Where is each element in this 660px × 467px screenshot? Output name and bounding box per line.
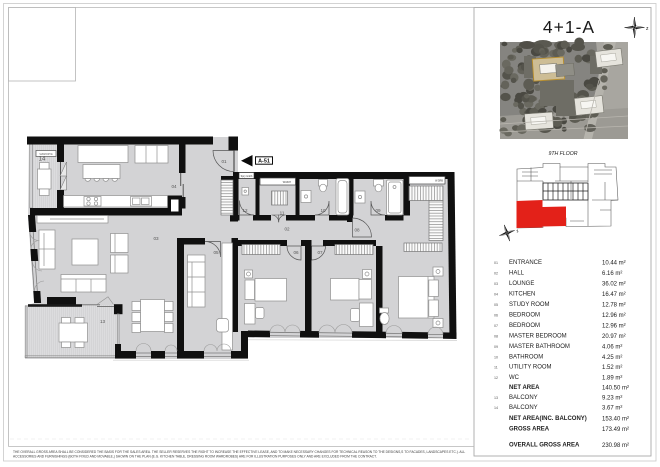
svg-text:20.97 m²: 20.97 m² <box>602 334 626 340</box>
svg-text:1.52 m²: 1.52 m² <box>602 365 622 371</box>
svg-text:10.44 m²: 10.44 m² <box>602 261 626 267</box>
svg-text:11: 11 <box>494 366 498 370</box>
svg-text:BEDROOM: BEDROOM <box>509 323 540 329</box>
svg-text:12.96 m²: 12.96 m² <box>602 313 626 319</box>
svg-text:LOUNGE: LOUNGE <box>509 281 534 287</box>
svg-text:07: 07 <box>494 324 498 328</box>
svg-text:NET AREA: NET AREA <box>509 385 540 391</box>
svg-text:BALCONY: BALCONY <box>509 395 538 401</box>
svg-text:08: 08 <box>354 228 360 233</box>
svg-text:03: 03 <box>153 236 159 241</box>
svg-text:UTILITY ROOM: UTILITY ROOM <box>509 365 552 371</box>
svg-text:STUDY ROOM: STUDY ROOM <box>509 302 550 308</box>
svg-text:140.50 m²: 140.50 m² <box>602 386 629 392</box>
svg-text:BATHROOM: BATHROOM <box>509 355 543 361</box>
svg-text:12.96 m²: 12.96 m² <box>602 324 626 330</box>
svg-text:09: 09 <box>494 345 498 349</box>
svg-text:ACCESSORIES AND FURNISHINGS (B: ACCESSORIES AND FURNISHINGS (BOTH FIXED … <box>13 455 377 459</box>
svg-text:01: 01 <box>221 159 227 164</box>
svg-text:GROSS AREA: GROSS AREA <box>509 427 550 433</box>
svg-text:01: 01 <box>494 261 498 265</box>
svg-text:09: 09 <box>375 208 381 213</box>
svg-text:05: 05 <box>494 303 498 307</box>
svg-text:14: 14 <box>494 406 498 410</box>
svg-text:36.02 m²: 36.02 m² <box>602 282 626 288</box>
svg-text:12: 12 <box>242 208 248 213</box>
svg-text:BALCONY: BALCONY <box>509 405 538 411</box>
svg-text:4.25 m²: 4.25 m² <box>602 355 622 361</box>
svg-text:153.40 m²: 153.40 m² <box>602 417 629 423</box>
svg-text:02: 02 <box>494 272 498 276</box>
svg-text:SLBM.DRYE: SLBM.DRYE <box>39 154 53 156</box>
svg-text:11: 11 <box>280 211 285 216</box>
svg-text:07: 07 <box>317 250 323 255</box>
svg-text:12: 12 <box>494 376 498 380</box>
svg-text:10: 10 <box>494 356 498 360</box>
svg-text:THE OVERALL GROSS AREA SHALL B: THE OVERALL GROSS AREA SHALL BE CONSIDER… <box>13 450 465 454</box>
svg-text:OVERALL GROSS AREA: OVERALL GROSS AREA <box>509 443 580 449</box>
svg-text:02: 02 <box>284 227 290 232</box>
svg-text:4+1-A: 4+1-A <box>543 17 595 37</box>
svg-text:9.23 m²: 9.23 m² <box>602 396 622 402</box>
svg-text:4.06 m²: 4.06 m² <box>602 345 622 351</box>
svg-text:1.89 m²: 1.89 m² <box>602 376 622 382</box>
svg-text:06: 06 <box>293 250 299 255</box>
svg-text:08: 08 <box>494 335 498 339</box>
svg-text:05: 05 <box>213 250 219 255</box>
svg-text:W.MCH: W.MCH <box>283 181 292 184</box>
svg-text:6.16 m²: 6.16 m² <box>602 271 622 277</box>
svg-text:06: 06 <box>494 314 498 318</box>
svg-text:BEDROOM: BEDROOM <box>509 313 540 319</box>
svg-text:A-51: A-51 <box>258 159 270 165</box>
svg-text:MASTER BATHROOM: MASTER BATHROOM <box>509 344 570 350</box>
svg-text:12.78 m²: 12.78 m² <box>602 303 626 309</box>
svg-text:04: 04 <box>171 184 177 189</box>
svg-text:03: 03 <box>494 282 498 286</box>
svg-text:10: 10 <box>320 208 326 213</box>
svg-text:230.98 m²: 230.98 m² <box>602 443 629 449</box>
svg-text:NET AREA(INC. BALCONY): NET AREA(INC. BALCONY) <box>509 416 587 422</box>
svg-text:KITCHEN: KITCHEN <box>509 292 535 298</box>
svg-text:ENTRANCE: ENTRANCE <box>509 260 542 266</box>
svg-text:14: 14 <box>39 157 46 163</box>
svg-text:13: 13 <box>100 319 106 324</box>
svg-text:13: 13 <box>494 396 498 400</box>
svg-text:16.47 m²: 16.47 m² <box>602 292 626 298</box>
svg-text:3.67 m²: 3.67 m² <box>602 406 622 412</box>
svg-text:173.49 m²: 173.49 m² <box>602 427 629 433</box>
svg-text:W.DRB: W.DRB <box>435 180 443 183</box>
svg-text:04: 04 <box>494 293 498 297</box>
svg-text:Spry Grdrb: Spry Grdrb <box>241 175 253 178</box>
svg-text:9TH FLOOR: 9TH FLOOR <box>548 151 577 157</box>
svg-text:MASTER BEDROOM: MASTER BEDROOM <box>509 334 567 340</box>
svg-text:HALL: HALL <box>509 271 525 277</box>
svg-text:WC: WC <box>509 375 520 381</box>
